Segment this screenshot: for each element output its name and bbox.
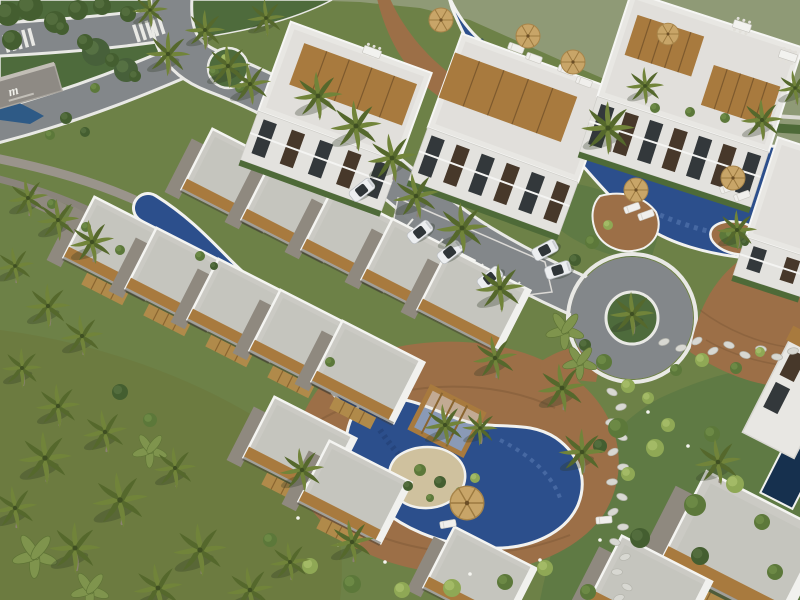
bush	[767, 564, 783, 580]
garden-light	[686, 444, 690, 448]
bush	[129, 70, 141, 82]
bush	[403, 481, 413, 491]
parasol	[657, 23, 679, 45]
bush	[661, 418, 675, 432]
bush	[580, 584, 596, 600]
scene-svg: m	[0, 0, 800, 600]
bush	[414, 464, 426, 476]
bush	[105, 53, 119, 67]
bush	[695, 353, 709, 367]
bush	[45, 130, 55, 140]
bush	[642, 392, 654, 404]
bush	[684, 494, 706, 516]
bush	[434, 476, 446, 488]
bush	[470, 473, 480, 483]
bush	[195, 251, 205, 261]
bush	[263, 533, 277, 547]
parasol	[516, 24, 540, 48]
sun-lounger	[596, 516, 613, 524]
bush	[120, 6, 136, 22]
bush	[596, 354, 612, 370]
stepping-stone	[617, 524, 628, 531]
bush	[621, 379, 635, 393]
bush	[2, 30, 22, 50]
garden-light	[468, 572, 472, 576]
parasol	[561, 50, 585, 74]
bush	[603, 220, 613, 230]
bush	[621, 467, 635, 481]
bush	[394, 582, 410, 598]
bush	[112, 384, 128, 400]
garden-light	[646, 410, 650, 414]
parasol	[624, 178, 648, 202]
bush	[343, 575, 361, 593]
garden-light	[296, 516, 300, 520]
parasol	[721, 166, 745, 190]
bush	[90, 83, 100, 93]
bush	[754, 514, 770, 530]
bush	[691, 547, 709, 565]
bush	[443, 579, 461, 597]
parasol	[450, 486, 484, 520]
bush	[730, 362, 742, 374]
bush	[646, 439, 664, 457]
bush	[77, 34, 93, 50]
bush	[143, 413, 157, 427]
bush	[68, 0, 88, 20]
stepping-stone	[611, 569, 622, 576]
bush	[720, 113, 730, 123]
bush	[325, 357, 335, 367]
bush	[569, 254, 581, 266]
bush	[608, 418, 628, 438]
bush	[210, 262, 218, 270]
bush	[685, 107, 695, 117]
bush	[60, 112, 72, 124]
bush	[426, 494, 434, 502]
bush	[630, 528, 650, 548]
garden-light	[598, 538, 602, 542]
bush	[80, 127, 90, 137]
bush	[585, 235, 599, 249]
bush	[670, 364, 682, 376]
aerial-resort-render: m	[0, 0, 800, 600]
bush	[497, 574, 513, 590]
bush	[650, 103, 660, 113]
bush	[537, 560, 553, 576]
bush	[115, 245, 125, 255]
garden-light	[383, 560, 387, 564]
bush	[704, 426, 720, 442]
bush	[55, 21, 69, 35]
parasol	[429, 8, 453, 32]
bush	[755, 347, 765, 357]
bush	[726, 475, 744, 493]
